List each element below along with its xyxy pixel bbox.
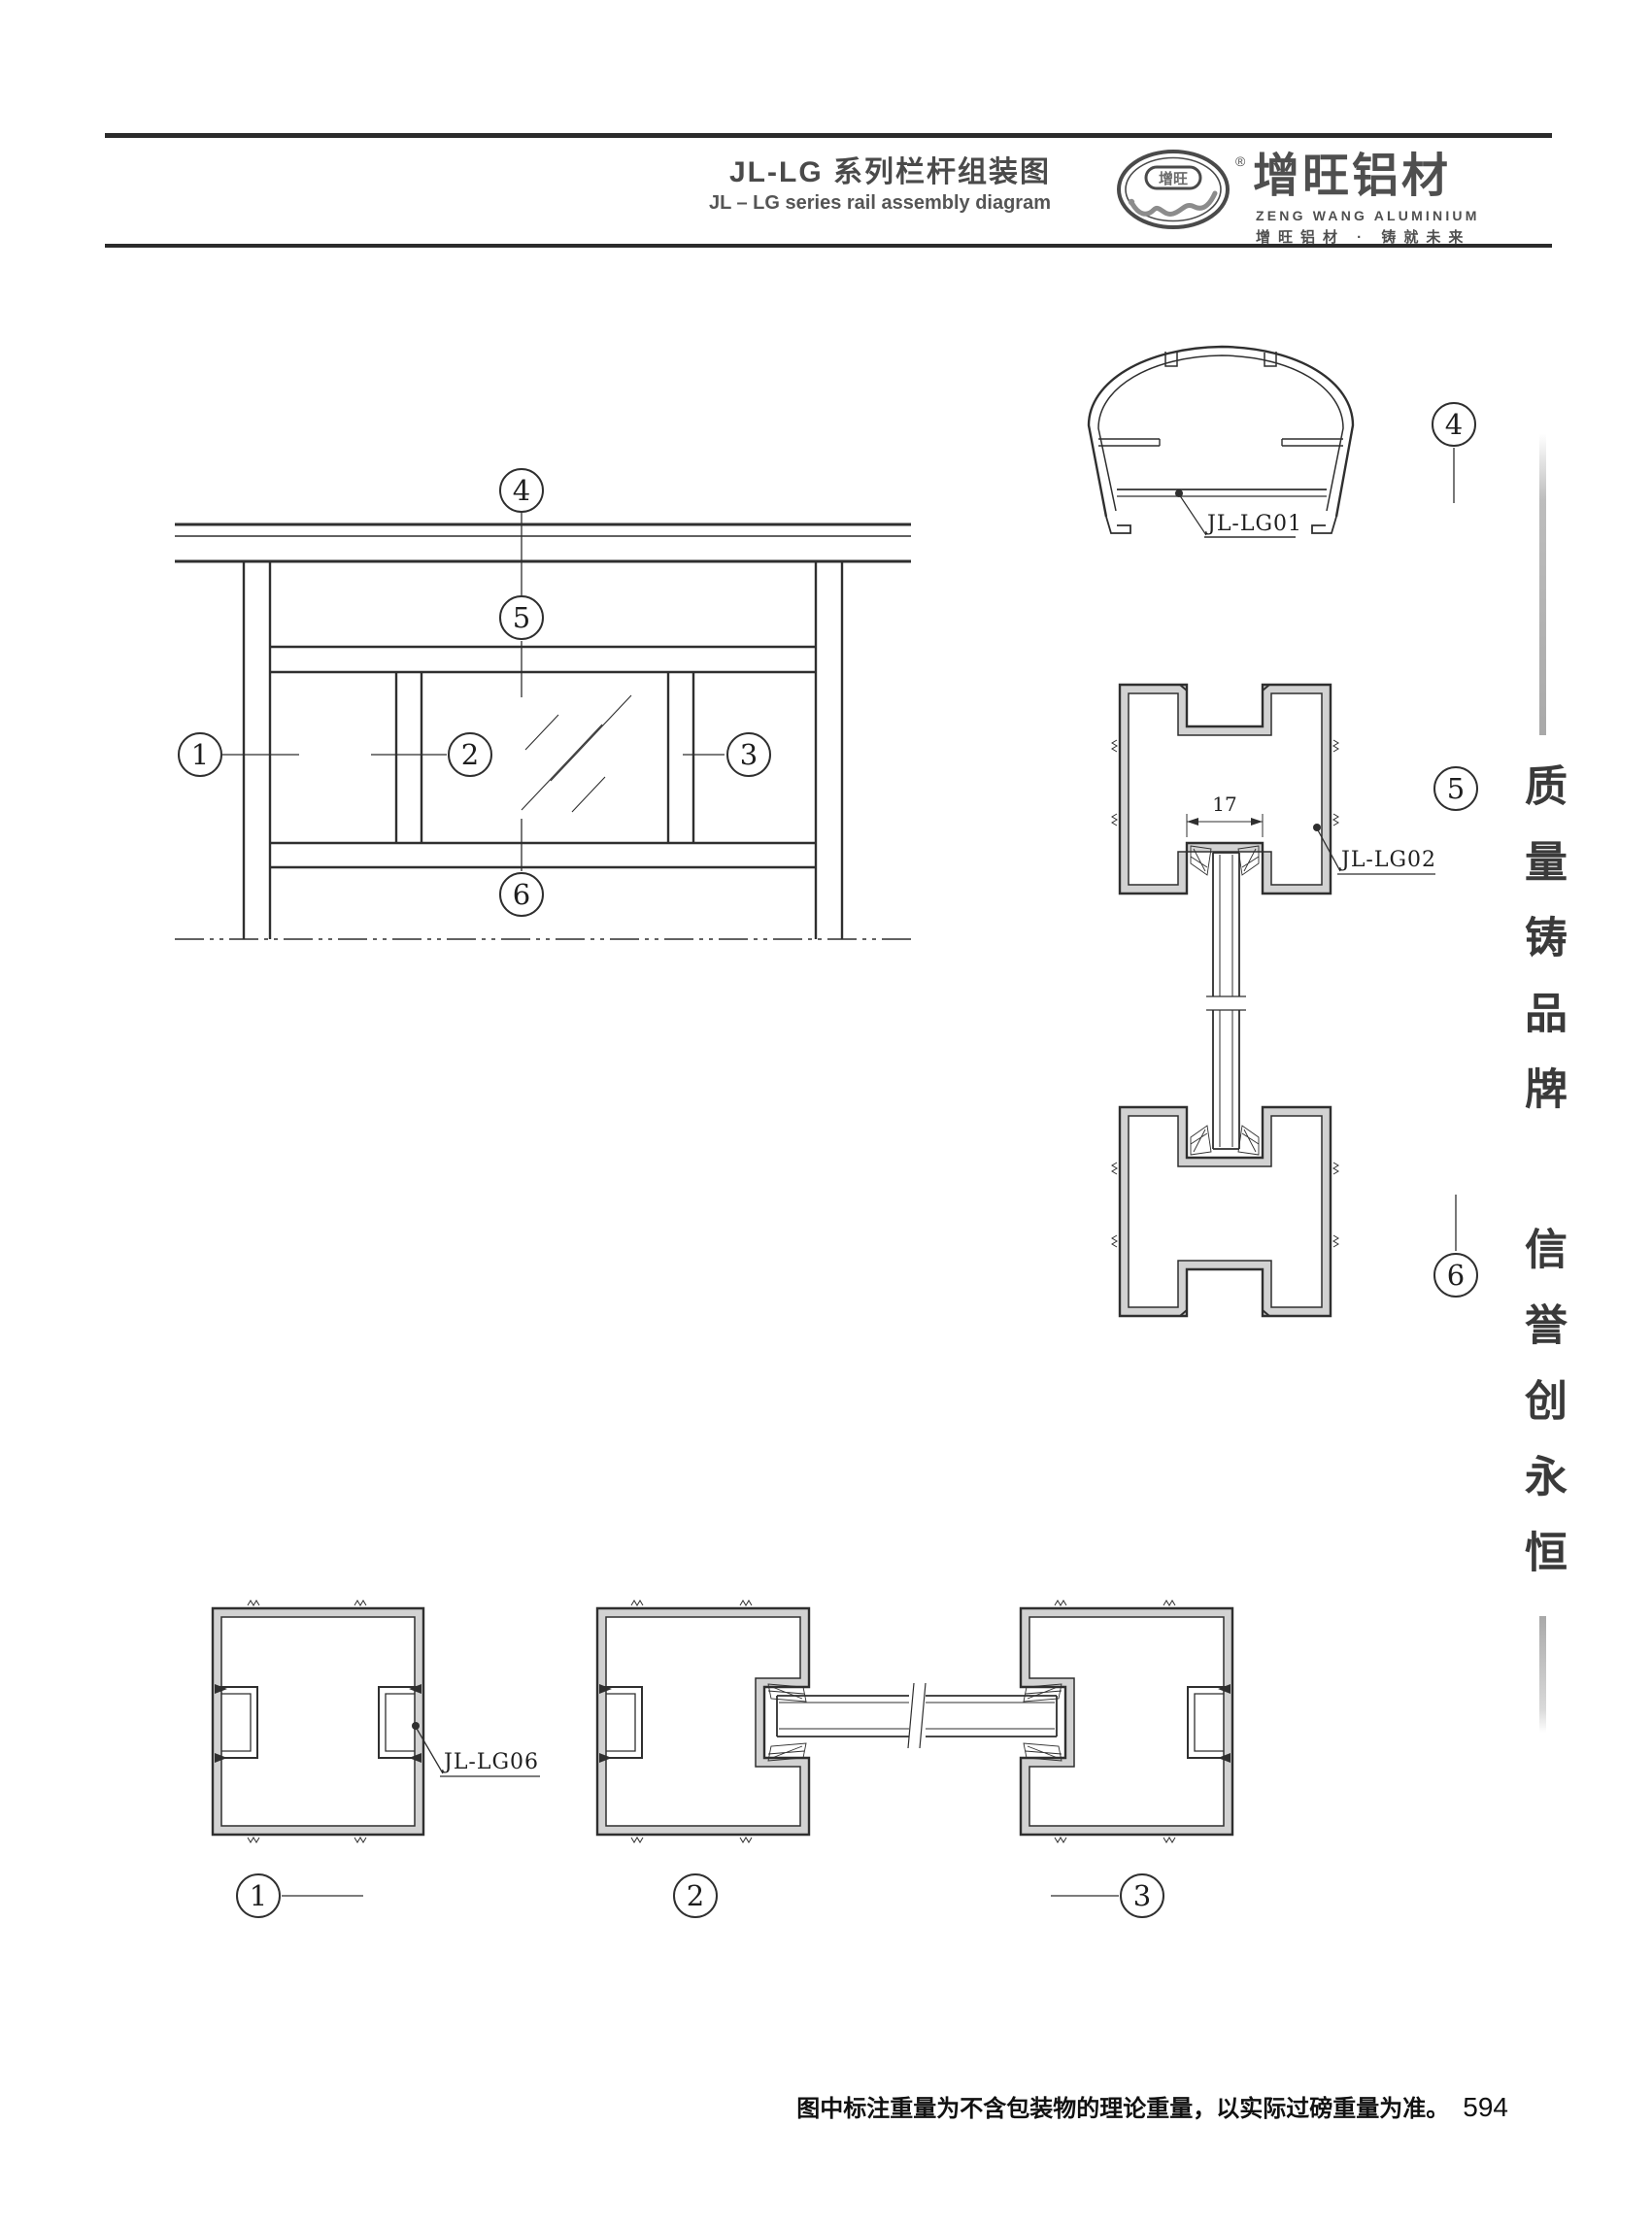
vertical-glass-pane xyxy=(1206,853,1246,1149)
section-jl-lg02 xyxy=(1112,685,1456,1251)
section-jl-lg06-rail xyxy=(1112,1107,1338,1316)
sidebar-slogan-bottom: 信誉创永恒 xyxy=(1516,1227,1567,1605)
page-number: 594 xyxy=(1463,2092,1508,2123)
section-post-1 xyxy=(213,1601,540,1896)
callout-5-detail: 5 xyxy=(1433,766,1478,811)
callout-4-detail: 4 xyxy=(1432,402,1476,447)
catalog-page: JL-LG 系列栏杆组装图 JL – LG series rail assemb… xyxy=(0,0,1652,2226)
callout-6-detail: 6 xyxy=(1433,1253,1478,1298)
glass-break xyxy=(908,1683,926,1748)
callout-1-section: 1 xyxy=(236,1873,281,1918)
callout-5-elevation: 5 xyxy=(499,595,544,640)
label-jl-lg06: JL-LG06 xyxy=(444,1750,539,1774)
dimension-lines xyxy=(1187,814,1263,837)
sidebar-slogan-top: 质量铸品牌 xyxy=(1516,763,1567,1142)
sidebar-bar-bottom xyxy=(1539,1616,1546,1733)
glass-hatch xyxy=(522,695,631,812)
callout-3-section: 3 xyxy=(1120,1873,1164,1918)
glass-break xyxy=(1206,996,1246,1010)
section-post-3 xyxy=(1021,1601,1232,1896)
callout-4-elevation: 4 xyxy=(499,468,544,513)
dimension-glass-slot-width: 17 xyxy=(1200,793,1249,816)
footer: 图中标注重量为不含包装物的理论重量，以实际过磅重量为准。 594 xyxy=(796,2089,1508,2123)
callout-3-elevation: 3 xyxy=(726,732,771,777)
callout-2-section: 2 xyxy=(673,1873,718,1918)
callout-1-elevation: 1 xyxy=(178,732,222,777)
label-jl-lg02: JL-LG02 xyxy=(1341,848,1436,872)
section-jl-lg01 xyxy=(1089,347,1454,537)
callout-2-elevation: 2 xyxy=(448,732,492,777)
gasket xyxy=(1238,1126,1259,1155)
horizontal-glass-pane xyxy=(777,1683,1057,1748)
callout-leaders xyxy=(222,513,725,871)
footer-note: 图中标注重量为不含包装物的理论重量，以实际过磅重量为准。 xyxy=(796,2089,1449,2123)
elevation-view xyxy=(175,513,911,939)
label-jl-lg01: JL-LG01 xyxy=(1207,512,1302,536)
gasket xyxy=(1191,1126,1211,1155)
callout-6-elevation: 6 xyxy=(499,872,544,917)
sidebar-bar-top xyxy=(1539,434,1546,735)
